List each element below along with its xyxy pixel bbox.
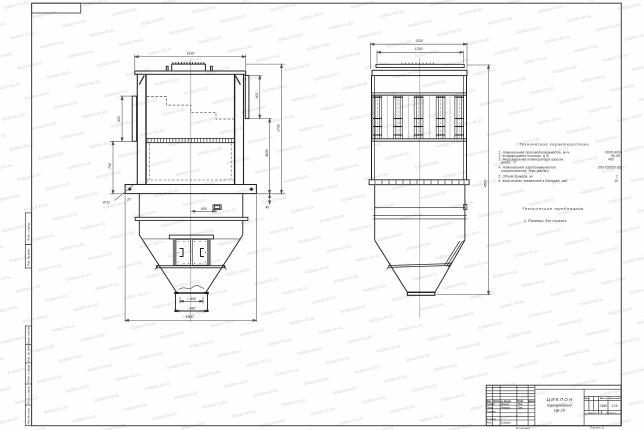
svg-text:1. Размеры для справок.: 1. Размеры для справок.	[524, 219, 568, 223]
svg-text:16: 16	[614, 179, 618, 183]
svg-text:Утв.: Утв.	[487, 422, 493, 425]
svg-text:□ 400: □ 400	[187, 297, 196, 301]
svg-text:Пнв: Пнв	[518, 407, 523, 410]
svg-text:Подп. и дата: Подп. и дата	[27, 386, 31, 404]
svg-text:400: 400	[608, 157, 614, 161]
svg-text:Подп. и дата: Подп. и дата	[27, 365, 31, 383]
svg-text:Ц И К Л О Н: Ц И К Л О Н	[547, 397, 573, 402]
svg-text:1800: 1800	[186, 315, 194, 319]
svg-text:сопротивление, Н/м² (кгс/м²): сопротивление, Н/м² (кгс/м²)	[501, 169, 549, 173]
svg-text:600: 600	[255, 93, 259, 99]
svg-text:ЦБ-16: ЦБ-16	[554, 408, 566, 413]
svg-text:Пров.: Пров.	[487, 407, 494, 410]
svg-text:Инв: Инв	[518, 403, 523, 406]
svg-text:Масса: Масса	[600, 398, 607, 400]
svg-text:Рисунок 21: Рисунок 21	[590, 426, 605, 430]
svg-text:800: 800	[201, 207, 207, 211]
svg-text:600: 600	[117, 116, 121, 122]
svg-text:Н.контр.: Н.контр.	[487, 418, 497, 421]
svg-text:500-650(50-65): 500-650(50-65)	[598, 165, 622, 169]
svg-text:Взам. инв.№: Взам. инв.№	[27, 326, 31, 344]
svg-text:СМИ: СМИ	[600, 404, 608, 408]
svg-text:1632: 1632	[187, 51, 195, 55]
svg-text:Дата: Дата	[527, 401, 535, 403]
svg-text:Ø 32: Ø 32	[102, 201, 110, 205]
svg-text:Технические требования: Технические требования	[522, 206, 584, 211]
svg-text:Технические характеристики: Технические характеристики	[519, 141, 590, 146]
svg-text:Листов 1: Листов 1	[605, 412, 617, 414]
svg-text:Иванов: Иванов	[501, 403, 510, 406]
svg-text:4650: 4650	[265, 149, 269, 157]
svg-text:6. Количество элементов в б: 6. Количество элементов в батарее, шт	[499, 179, 568, 183]
svg-text:730: 730	[108, 163, 112, 169]
svg-text:Сидоров: Сидоров	[501, 422, 511, 425]
svg-text:1:10: 1:10	[611, 404, 617, 408]
svg-text:1730: 1730	[277, 124, 281, 132]
svg-text:20: 20	[126, 198, 131, 202]
svg-text:Масштаб: Масштаб	[609, 397, 620, 400]
svg-text:Инв. № дубл: Инв. № дубл	[27, 345, 31, 362]
svg-text:1200: 1200	[415, 47, 423, 51]
svg-text:□440: □440	[188, 307, 196, 311]
svg-text:входе, °С: входе, °С	[501, 161, 517, 165]
svg-text:Разраб.: Разраб.	[487, 403, 496, 406]
svg-text:4500: 4500	[484, 180, 488, 188]
svg-text:Лит.: Лит.	[583, 398, 590, 400]
svg-text:Инв. № дубл.: Инв. № дубл.	[27, 248, 31, 266]
svg-text:Т.контр.: Т.контр.	[487, 410, 497, 413]
svg-text:1320: 1320	[415, 39, 423, 43]
svg-text:Инв.№ подл.: Инв.№ подл.	[27, 407, 31, 424]
svg-text:40: 40	[266, 206, 270, 210]
svg-text:Копировал: Копировал	[516, 426, 530, 430]
svg-text:Петров: Петров	[501, 407, 511, 410]
svg-text:Подп. и дата: Подп. и дата	[27, 223, 31, 241]
svg-text:Лист 1: Лист 1	[587, 412, 596, 414]
